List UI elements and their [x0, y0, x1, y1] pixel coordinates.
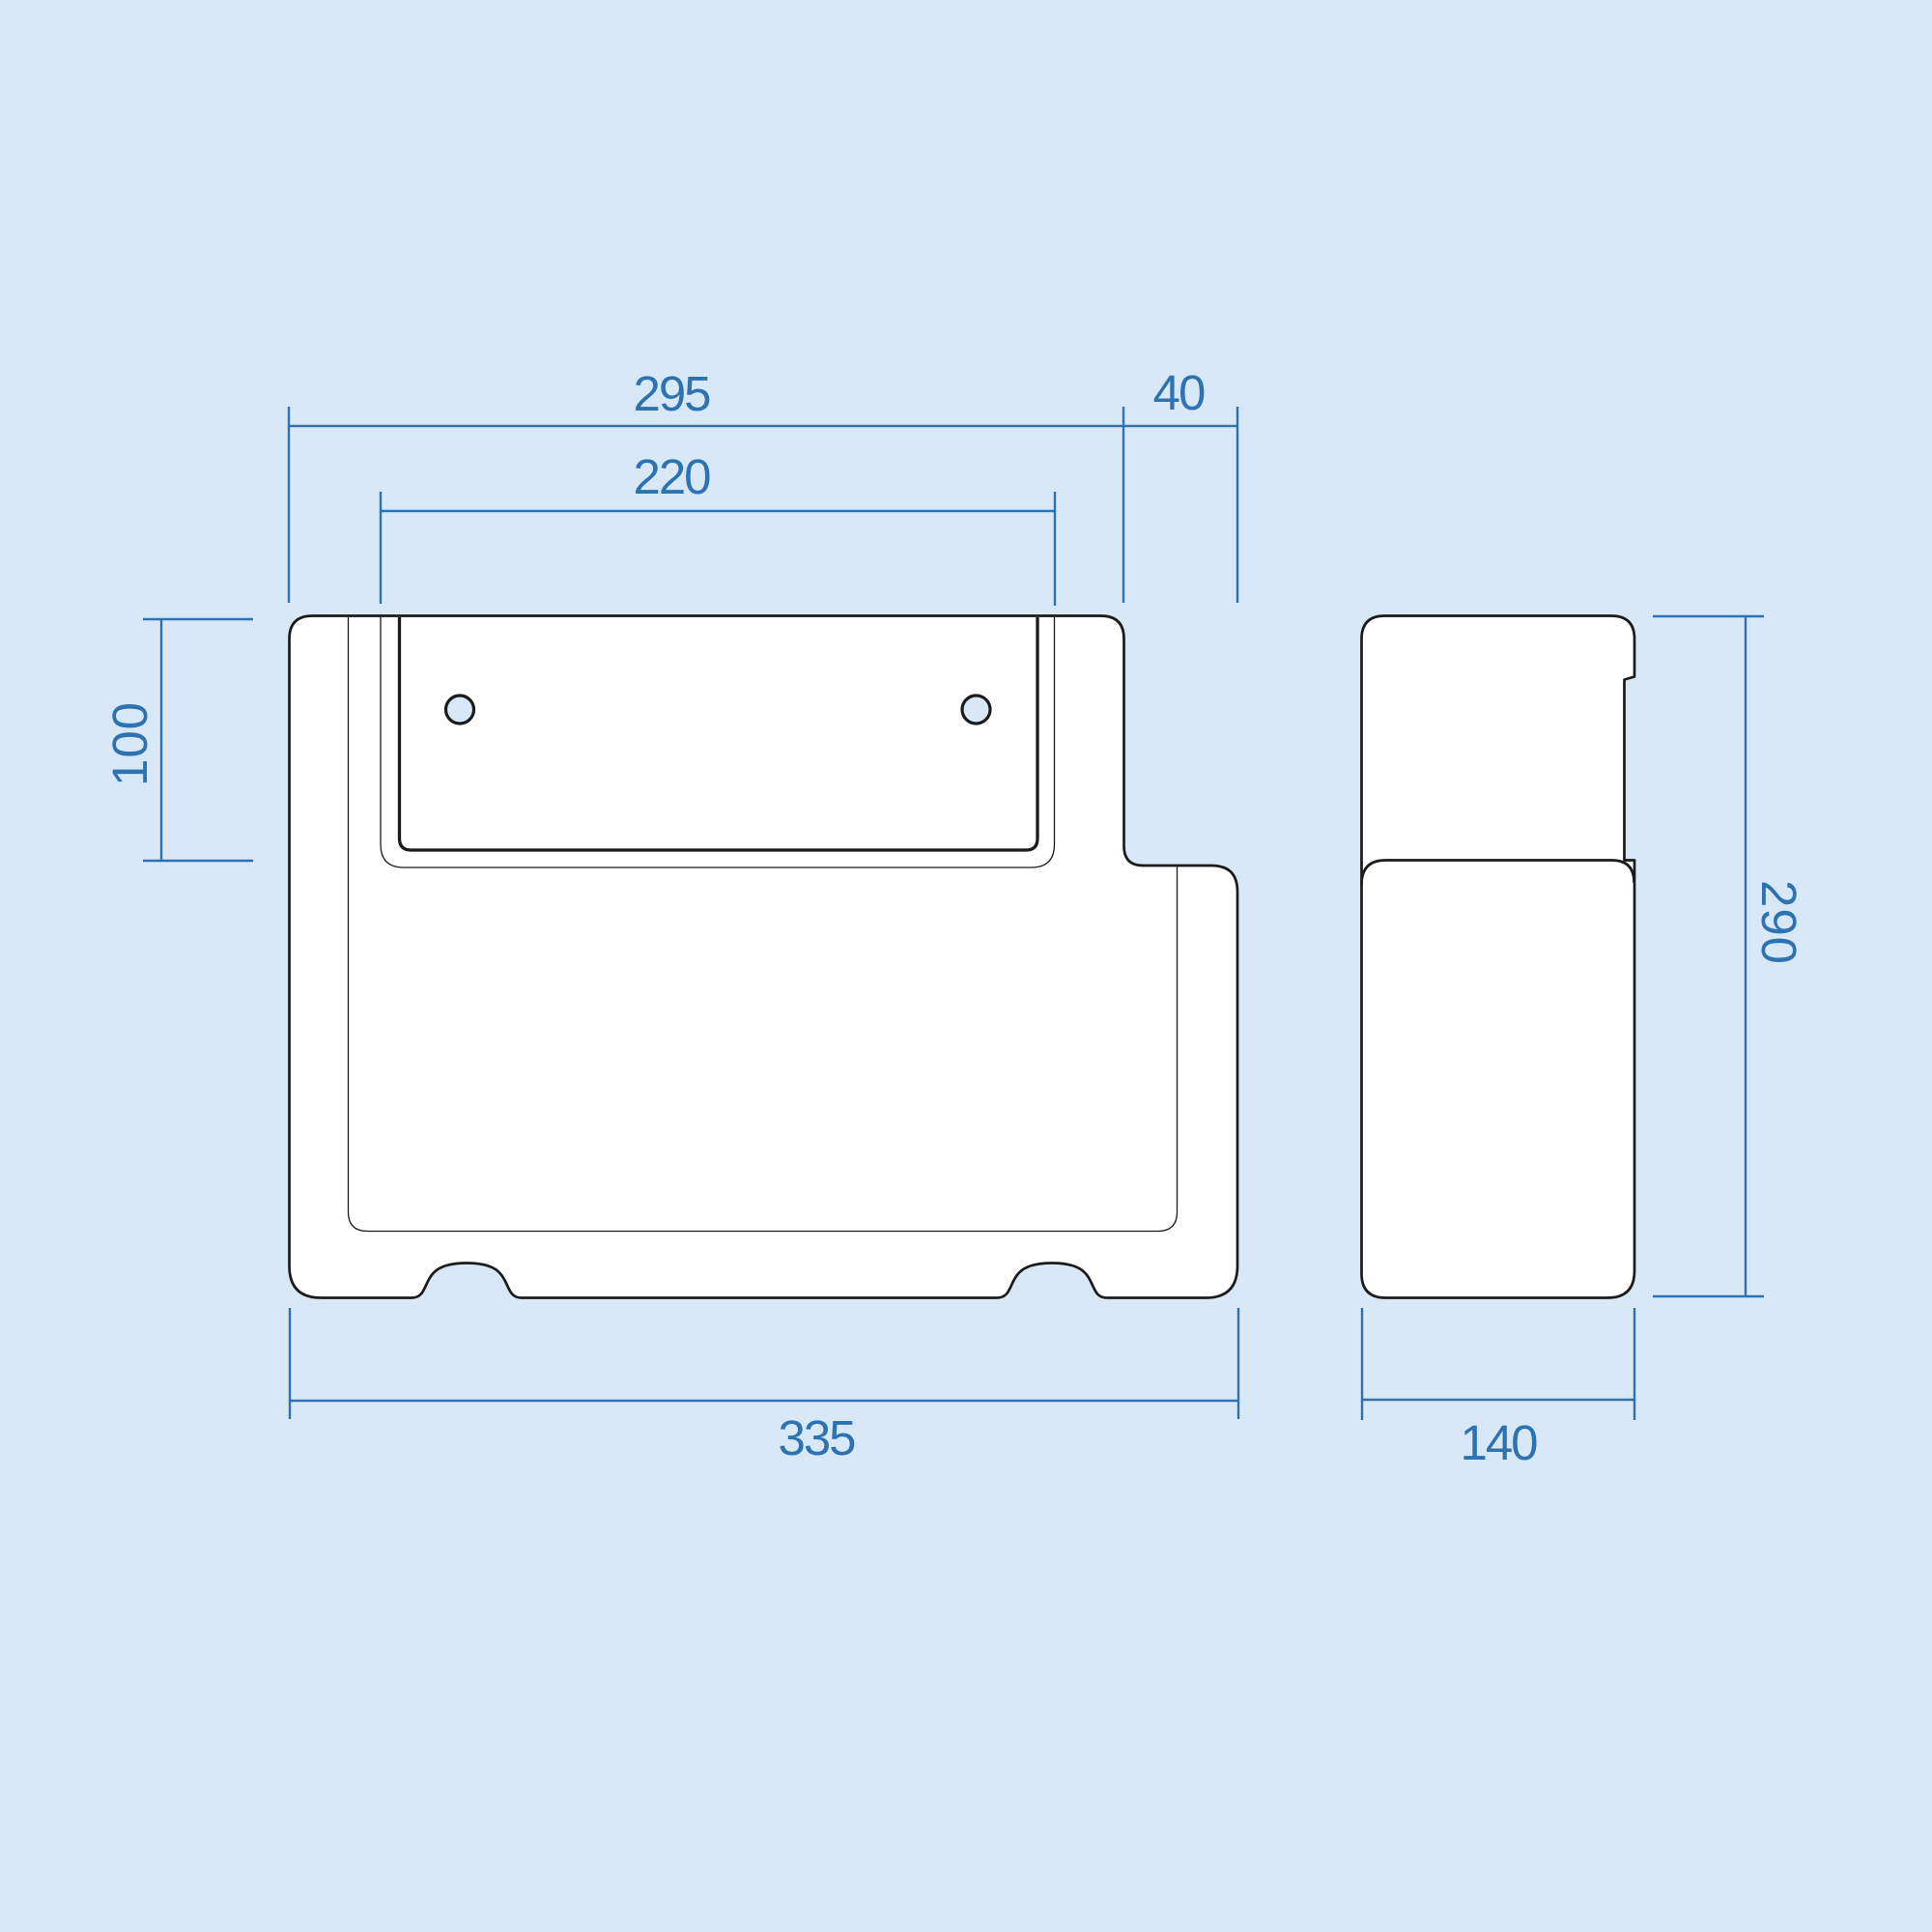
- svg-text:40: 40: [1153, 365, 1205, 420]
- svg-text:220: 220: [633, 449, 710, 504]
- svg-text:290: 290: [1751, 880, 1806, 965]
- svg-text:335: 335: [778, 1410, 855, 1465]
- svg-text:100: 100: [102, 701, 157, 786]
- svg-text:295: 295: [633, 366, 710, 421]
- svg-text:140: 140: [1460, 1415, 1537, 1470]
